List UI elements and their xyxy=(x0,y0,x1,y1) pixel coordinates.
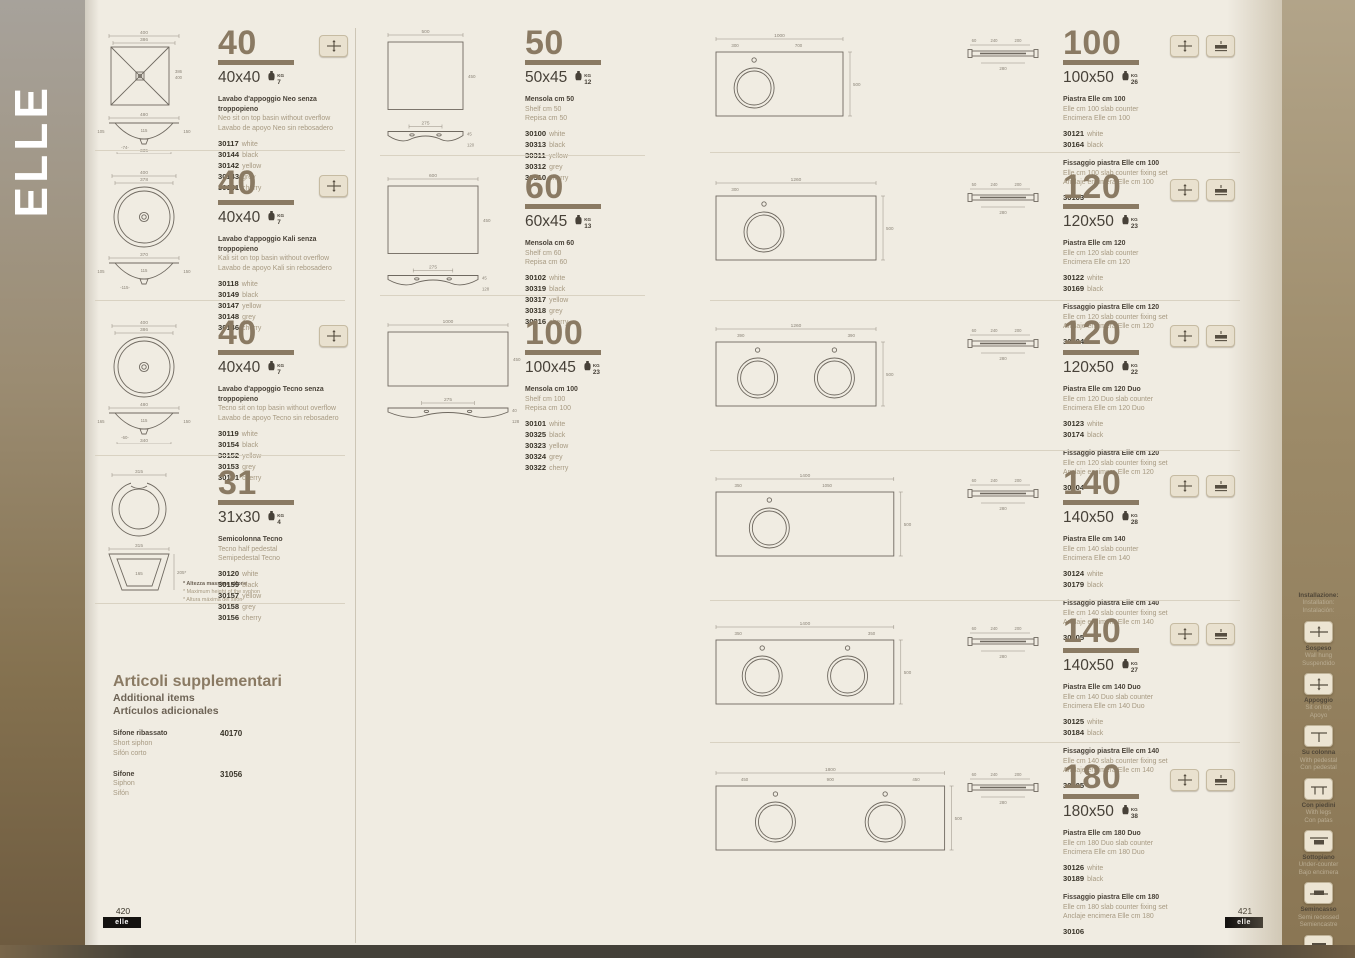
product-color: black xyxy=(1087,432,1103,439)
installation-icons xyxy=(1170,769,1235,791)
product-size-row: 180x50KG38 xyxy=(1063,802,1235,821)
brand-logo: ELLE xyxy=(8,84,54,218)
product-name-en: Shelf cm 50 xyxy=(525,105,647,115)
svg-text:386: 386 xyxy=(175,69,183,74)
product-header: 3131x30KG4 xyxy=(218,468,348,527)
legend-label-en: With pedestal xyxy=(1282,757,1355,764)
product-name-es: Encimera Elle cm 140 xyxy=(1063,554,1235,564)
supplementary-item-code: 31056 xyxy=(220,770,242,779)
tech-drawing: 400386386400480105115150-74-335 xyxy=(95,28,213,159)
product-code-row: 30322cherry xyxy=(525,463,647,474)
weight-spec: KG12 xyxy=(575,68,591,87)
product-name-it: Mensola cm 100 xyxy=(525,385,647,395)
svg-text:500: 500 xyxy=(886,372,894,377)
product-size: 60x45 xyxy=(525,213,567,231)
product-color: white xyxy=(1087,865,1103,872)
svg-text:115: 115 xyxy=(141,268,148,273)
weight-label: KG22 xyxy=(1131,363,1138,376)
under-counter-icon xyxy=(1304,830,1333,852)
weight-value: 23 xyxy=(593,369,600,376)
product-name-it: Piastra Elle cm 120 xyxy=(1063,239,1235,249)
product-code: 30322 xyxy=(525,463,546,472)
fixing-code: 30106 xyxy=(1063,927,1235,936)
svg-text:60: 60 xyxy=(972,328,977,333)
weight-icon xyxy=(584,358,591,376)
svg-text:1000: 1000 xyxy=(443,319,454,325)
svg-text:1260: 1260 xyxy=(791,323,802,329)
product-info: 5050x45KG12Mensola cm 50Shelf cm 50Repis… xyxy=(525,28,647,184)
legend-title-en: Installation: xyxy=(1282,599,1355,607)
svg-text:386: 386 xyxy=(140,37,148,43)
product-color: black xyxy=(549,286,565,293)
product-color: white xyxy=(242,141,258,148)
svg-text:390: 390 xyxy=(848,333,856,338)
supplementary-section: Articoli supplementari Additional items … xyxy=(113,673,368,799)
product-header: 120120x50KG23 xyxy=(1063,172,1235,231)
tech-drawing: 100030070050060240200280 xyxy=(710,28,1055,133)
product-name-en: Elle cm 140 slab counter xyxy=(1063,545,1235,555)
weight-icon xyxy=(268,208,275,226)
product-code-row: 30323yellow xyxy=(525,441,647,452)
svg-text:-60-: -60- xyxy=(121,435,129,440)
product-code: 30122 xyxy=(1063,273,1084,282)
product-name-en: Elle cm 120 Duo slab counter xyxy=(1063,395,1235,405)
product-color: yellow xyxy=(549,297,568,304)
product-name-es: Repisa cm 60 xyxy=(525,258,647,268)
product-size-row: 60x45KG13 xyxy=(525,212,647,231)
product-code: 30147 xyxy=(218,301,239,310)
svg-text:280: 280 xyxy=(999,654,1007,659)
svg-text:150: 150 xyxy=(183,129,191,134)
product-code: 30323 xyxy=(525,441,546,450)
svg-text:240: 240 xyxy=(991,182,999,187)
svg-text:45: 45 xyxy=(482,276,487,281)
weight-icon xyxy=(1122,802,1129,820)
product-code-list: 30121white30164black xyxy=(1063,129,1235,151)
svg-text:450: 450 xyxy=(468,74,476,79)
product-name-en: Tecno half pedestal xyxy=(218,545,348,555)
product-header: 100100x45KG23 xyxy=(525,318,647,377)
product-color: white xyxy=(1087,421,1103,428)
with-legs-icon xyxy=(1304,778,1333,800)
product-code: 30118 xyxy=(218,279,239,288)
svg-text:150: 150 xyxy=(183,269,191,274)
legend-label-es: Con pedestal xyxy=(1282,764,1355,771)
product-size-row: 140x50KG27 xyxy=(1063,656,1235,675)
product-code: 30179 xyxy=(1063,580,1084,589)
product-header: 4040x40KG7 xyxy=(218,168,348,227)
svg-text:240: 240 xyxy=(991,772,999,777)
product-code-list: 30120white30159black30157yellow30158grey… xyxy=(218,569,348,624)
product-color: yellow xyxy=(549,443,568,450)
product-color: cherry xyxy=(242,615,261,622)
svg-text:1800: 1800 xyxy=(825,767,836,773)
weight-value: 4 xyxy=(277,519,284,526)
product-size: 40x40 xyxy=(218,69,260,87)
product-name-it: Lavabo d'appoggio Tecno senza troppopien… xyxy=(218,385,348,404)
product-color: black xyxy=(549,142,565,149)
product-color: black xyxy=(242,582,258,589)
product-name-it: Mensola cm 50 xyxy=(525,95,647,105)
svg-text:60: 60 xyxy=(972,38,977,43)
product-color: white xyxy=(1087,275,1103,282)
legend-label-es: Bajo encimera xyxy=(1282,869,1355,876)
weight-label: KG23 xyxy=(1131,217,1138,230)
product-size-row: 40x40KG7 xyxy=(218,68,348,87)
product-code: 30174 xyxy=(1063,430,1084,439)
product-size: 100x50 xyxy=(1063,69,1114,87)
product-size-row: 100x45KG23 xyxy=(525,358,647,377)
weight-label: KG38 xyxy=(1131,807,1138,820)
weight-icon xyxy=(575,68,582,86)
weight-value: 26 xyxy=(1131,79,1138,86)
slab-counter-icon xyxy=(1206,179,1235,201)
product-name-es: Encimera Elle cm 120 xyxy=(1063,258,1235,268)
product-header: 140140x50KG27 xyxy=(1063,616,1235,675)
svg-text:600: 600 xyxy=(429,173,437,179)
supplementary-title: Articoli supplementari xyxy=(113,673,368,691)
weight-icon xyxy=(268,358,275,376)
svg-text:1400: 1400 xyxy=(800,473,811,479)
product-size-row: 120x50KG23 xyxy=(1063,212,1235,231)
product-size: 120x50 xyxy=(1063,213,1114,231)
product-color: yellow xyxy=(549,153,568,160)
product-code-row: 30101white xyxy=(525,419,647,430)
weight-spec: KG13 xyxy=(575,212,591,231)
legend-label-it: Appoggio xyxy=(1282,697,1355,704)
product-code-list: 30125white30184black xyxy=(1063,717,1235,739)
product-info: 3131x30KG4Semicolonna TecnoTecno half pe… xyxy=(218,468,348,624)
product-size: 140x50 xyxy=(1063,509,1114,527)
product-name-es: Lavabo de apoyo Neo sin rebosadero xyxy=(218,124,348,134)
product-name-it: Lavabo d'appoggio Neo senza troppopieno xyxy=(218,95,348,114)
svg-text:120: 120 xyxy=(467,143,475,148)
sit-on-top-icon xyxy=(1170,623,1199,645)
product-color: yellow xyxy=(242,453,261,460)
legend-title-es: Instalación: xyxy=(1282,607,1355,615)
weight-icon xyxy=(575,212,582,230)
product-code-row: 30169black xyxy=(1063,284,1235,295)
product-code-row: 30102white xyxy=(525,273,647,284)
product-color: black xyxy=(549,432,565,439)
slab-counter-icon xyxy=(1206,325,1235,347)
product-code: 30189 xyxy=(1063,874,1084,883)
product-code: 30123 xyxy=(1063,419,1084,428)
product-code: 30121 xyxy=(1063,129,1084,138)
legend-item: AppoggioSit on topApoyo xyxy=(1282,673,1355,719)
svg-text:386: 386 xyxy=(140,327,148,333)
weight-spec: KG28 xyxy=(1122,508,1138,527)
weight-label: KG7 xyxy=(277,363,284,376)
block-separator xyxy=(95,300,345,301)
svg-text:240: 240 xyxy=(991,328,999,333)
fixing-name-it: Fissaggio piastra Elle cm 120 xyxy=(1063,303,1235,313)
product-name-es: Lavabo de apoyo Tecno sin rebosadero xyxy=(218,414,348,424)
svg-text:200: 200 xyxy=(1015,626,1023,631)
legend-label-es: Con patas xyxy=(1282,817,1355,824)
product-code-row: 30174black xyxy=(1063,430,1235,441)
product-size-row: 100x50KG26 xyxy=(1063,68,1235,87)
installation-icons xyxy=(1170,35,1235,57)
block-separator xyxy=(710,742,1240,743)
product-code: 30325 xyxy=(525,430,546,439)
product-name-en: Kali sit on top basin without overflow xyxy=(218,254,348,264)
product-color: white xyxy=(1087,131,1103,138)
installation-icons xyxy=(1170,325,1235,347)
product-code-row: 30179black xyxy=(1063,580,1235,591)
product-code-row: 30325black xyxy=(525,430,647,441)
product-color: black xyxy=(242,292,258,299)
weight-icon xyxy=(1122,358,1129,376)
product-code: 30125 xyxy=(1063,717,1084,726)
block-separator xyxy=(95,150,345,151)
pages-area: Articoli supplementari Additional items … xyxy=(85,0,1282,945)
legend-item: SospesoWall hungSuspendido xyxy=(1282,621,1355,667)
catalog-spread: Articoli supplementari Additional items … xyxy=(0,0,1355,958)
legend-item: SottopianoUnder-counterBajo encimera xyxy=(1282,830,1355,876)
sit-on-top-icon xyxy=(1304,673,1333,695)
product-name-es: Lavabo de apoyo Kali sin rebosadero xyxy=(218,264,348,274)
product-code: 30159 xyxy=(218,580,239,589)
product-name-it: Semicolonna Tecno xyxy=(218,535,348,545)
svg-text:280: 280 xyxy=(999,506,1007,511)
block-separator xyxy=(380,295,645,296)
product-code: 30169 xyxy=(1063,284,1084,293)
product-name-en: Shelf cm 100 xyxy=(525,395,647,405)
product-name-es: Encimera Elle cm 180 Duo xyxy=(1063,848,1235,858)
semi-recessed-icon xyxy=(1304,882,1333,904)
svg-text:1050: 1050 xyxy=(822,483,832,488)
weight-value: 7 xyxy=(277,219,284,226)
product-code: 30319 xyxy=(525,284,546,293)
weight-icon xyxy=(268,68,275,86)
product-header: 180180x50KG38 xyxy=(1063,762,1235,821)
slab-counter-icon xyxy=(1206,475,1235,497)
product-code-row: 30126white xyxy=(1063,863,1235,874)
product-code-list: 30101white30325black30323yellow30324grey… xyxy=(525,419,647,474)
product-color: cherry xyxy=(549,465,568,472)
svg-text:60: 60 xyxy=(972,626,977,631)
product-name-es: Repisa cm 100 xyxy=(525,404,647,414)
legend-label-it: Con piedini xyxy=(1282,802,1355,809)
weight-spec: KG7 xyxy=(268,68,284,87)
weight-value: 28 xyxy=(1131,519,1138,526)
product-color: white xyxy=(1087,719,1103,726)
product-code-row: 30100white xyxy=(525,129,647,140)
product-size-row: 140x50KG28 xyxy=(1063,508,1235,527)
legend-label-en: Under-counter xyxy=(1282,861,1355,868)
fixing-name-it: Fissaggio piastra Elle cm 140 xyxy=(1063,747,1235,757)
svg-text:280: 280 xyxy=(999,66,1007,71)
svg-text:340: 340 xyxy=(140,438,148,444)
tech-drawing: 400386480165115150-60-340 xyxy=(95,318,213,449)
svg-text:275: 275 xyxy=(421,121,429,127)
product-code: 30120 xyxy=(218,569,239,578)
product-code-row: 30313black xyxy=(525,140,647,151)
installation-icons xyxy=(319,35,348,57)
product-code-row: 30122white xyxy=(1063,273,1235,284)
left-band: ELLE xyxy=(0,0,85,945)
svg-text:400: 400 xyxy=(140,30,148,36)
block-separator xyxy=(95,455,345,456)
svg-text:165: 165 xyxy=(135,571,143,576)
sit-on-top-icon xyxy=(1170,325,1199,347)
product-number: 60 xyxy=(525,172,647,202)
product-code-list: 30122white30169black xyxy=(1063,273,1235,295)
svg-text:200: 200 xyxy=(1015,182,1023,187)
svg-text:315: 315 xyxy=(135,543,143,549)
product-size: 100x45 xyxy=(525,359,576,377)
supplementary-item-name-en: Siphon xyxy=(113,779,368,789)
svg-text:-115-: -115- xyxy=(120,285,130,290)
product-info: 6060x45KG13Mensola cm 60Shelf cm 60Repis… xyxy=(525,172,647,328)
product-code: 30102 xyxy=(525,273,546,282)
product-color: grey xyxy=(242,604,255,611)
product-color: white xyxy=(549,275,565,282)
product-size: 50x45 xyxy=(525,69,567,87)
legend-label-es: Suspendido xyxy=(1282,660,1355,667)
product-info: 180180x50KG38Piastra Elle cm 180 DuoElle… xyxy=(1063,762,1235,936)
weight-icon xyxy=(1122,508,1129,526)
product-code: 30317 xyxy=(525,295,546,304)
product-name-it: Lavabo d'appoggio Kali senza troppopieno xyxy=(218,235,348,254)
product-color: yellow xyxy=(242,593,261,600)
svg-text:450: 450 xyxy=(483,218,491,223)
product-color: black xyxy=(1087,730,1103,737)
tech-drawing: 1400350105050060240200280 xyxy=(710,468,1055,573)
product-size-row: 120x50KG22 xyxy=(1063,358,1235,377)
block-separator xyxy=(380,155,645,156)
product-code-list: 30124white30179black xyxy=(1063,569,1235,591)
block-separator xyxy=(710,450,1240,451)
svg-text:280: 280 xyxy=(999,800,1007,805)
product-code: 30101 xyxy=(525,419,546,428)
sit-on-top-icon xyxy=(1170,475,1199,497)
product-header: 140140x50KG28 xyxy=(1063,468,1235,527)
product-name-it: Piastra Elle cm 100 xyxy=(1063,95,1235,105)
product-color: black xyxy=(1087,286,1103,293)
product-code: 30124 xyxy=(1063,569,1084,578)
weight-label: KG26 xyxy=(1131,73,1138,86)
column-divider xyxy=(355,28,356,943)
block-separator xyxy=(95,603,345,604)
product-name-en: Elle cm 180 Duo slab counter xyxy=(1063,839,1235,849)
weight-spec: KG22 xyxy=(1122,358,1138,377)
weight-icon xyxy=(1122,656,1129,674)
svg-text:500: 500 xyxy=(904,522,912,527)
product-size-row: 50x45KG12 xyxy=(525,68,647,87)
svg-text:200: 200 xyxy=(1015,772,1023,777)
weight-label: KG23 xyxy=(593,363,600,376)
legend-item: Con piediniWith legsCon patas xyxy=(1282,778,1355,824)
product-code: 30117 xyxy=(218,139,239,148)
bottom-bar xyxy=(0,945,1355,958)
product-header: 4040x40KG7 xyxy=(218,28,348,87)
product-name-it: Piastra Elle cm 140 Duo xyxy=(1063,683,1235,693)
product-code-row: 30154black xyxy=(218,440,348,451)
product-code-row: 30119white xyxy=(218,429,348,440)
tech-drawing: 400378370105115150-115- xyxy=(95,168,213,299)
supplementary-subtitle-en: Additional items xyxy=(113,692,368,705)
product-header: 100100x50KG26 xyxy=(1063,28,1235,87)
with-pedestal-icon xyxy=(1304,725,1333,747)
product-code: 30184 xyxy=(1063,728,1084,737)
svg-text:350: 350 xyxy=(735,483,743,488)
product-name-en: Elle cm 120 slab counter xyxy=(1063,249,1235,259)
svg-text:500: 500 xyxy=(904,670,912,675)
product-size-row: 40x40KG7 xyxy=(218,358,348,377)
svg-text:1260: 1260 xyxy=(791,177,802,183)
svg-text:45: 45 xyxy=(467,132,472,137)
svg-text:280: 280 xyxy=(999,210,1007,215)
block-separator xyxy=(710,300,1240,301)
weight-icon xyxy=(1122,68,1129,86)
product-name-es: Encimera Elle cm 140 Duo xyxy=(1063,702,1235,712)
svg-text:370: 370 xyxy=(140,252,148,258)
tech-drawing: 180045090045050060240200280 xyxy=(710,762,1055,867)
fixing-name-en: Elle cm 180 slab counter fixing set xyxy=(1063,903,1235,913)
svg-text:240: 240 xyxy=(991,626,999,631)
supplementary-item-code: 40170 xyxy=(220,729,242,738)
svg-text:128: 128 xyxy=(482,287,490,292)
weight-value: 22 xyxy=(1131,369,1138,376)
installation-icons xyxy=(1170,475,1235,497)
product-code: 30119 xyxy=(218,429,239,438)
product-code: 30324 xyxy=(525,452,546,461)
installation-icons xyxy=(1170,623,1235,645)
product-code-row: 30324grey xyxy=(525,452,647,463)
sit-on-top-icon xyxy=(319,35,348,57)
product-info: 4040x40KG7Lavabo d'appoggio Kali senza t… xyxy=(218,168,348,333)
svg-text:1400: 1400 xyxy=(800,621,811,627)
product-code-list: 30123white30174black xyxy=(1063,419,1235,441)
svg-text:275: 275 xyxy=(429,265,437,271)
legend-label-it: Semincasso xyxy=(1282,906,1355,913)
supplementary-item: Sifone Siphon Sifón 31056 xyxy=(113,770,368,799)
svg-text:240: 240 xyxy=(991,478,999,483)
svg-text:60: 60 xyxy=(972,772,977,777)
product-code-row: 30317yellow xyxy=(525,295,647,306)
weight-spec: KG23 xyxy=(1122,212,1138,231)
product-code: 30154 xyxy=(218,440,239,449)
product-code-row: 30125white xyxy=(1063,717,1235,728)
product-size: 40x40 xyxy=(218,209,260,227)
weight-icon xyxy=(1122,212,1129,230)
svg-text:240: 240 xyxy=(991,38,999,43)
installation-icons xyxy=(319,175,348,197)
product-code-row: 30144black xyxy=(218,150,348,161)
product-code-row: 30159black xyxy=(218,580,348,591)
weight-value: 27 xyxy=(1131,667,1138,674)
weight-label: KG7 xyxy=(277,213,284,226)
svg-text:900: 900 xyxy=(827,777,835,782)
sit-on-top-icon xyxy=(1170,179,1199,201)
weight-value: 13 xyxy=(584,223,591,230)
svg-text:500: 500 xyxy=(421,29,429,35)
svg-text:450: 450 xyxy=(741,777,749,782)
product-name-en: Tecno sit on top basin without overflow xyxy=(218,404,348,414)
left-page-number: 420 xyxy=(103,906,143,916)
svg-text:390: 390 xyxy=(737,333,745,338)
block-separator xyxy=(710,600,1240,601)
product-color: white xyxy=(242,281,258,288)
svg-text:105: 105 xyxy=(97,269,105,274)
product-code: 30149 xyxy=(218,290,239,299)
weight-label: KG7 xyxy=(277,73,284,86)
product-name-it: Mensola cm 60 xyxy=(525,239,647,249)
product-size: 180x50 xyxy=(1063,803,1114,821)
block-separator xyxy=(710,152,1240,153)
